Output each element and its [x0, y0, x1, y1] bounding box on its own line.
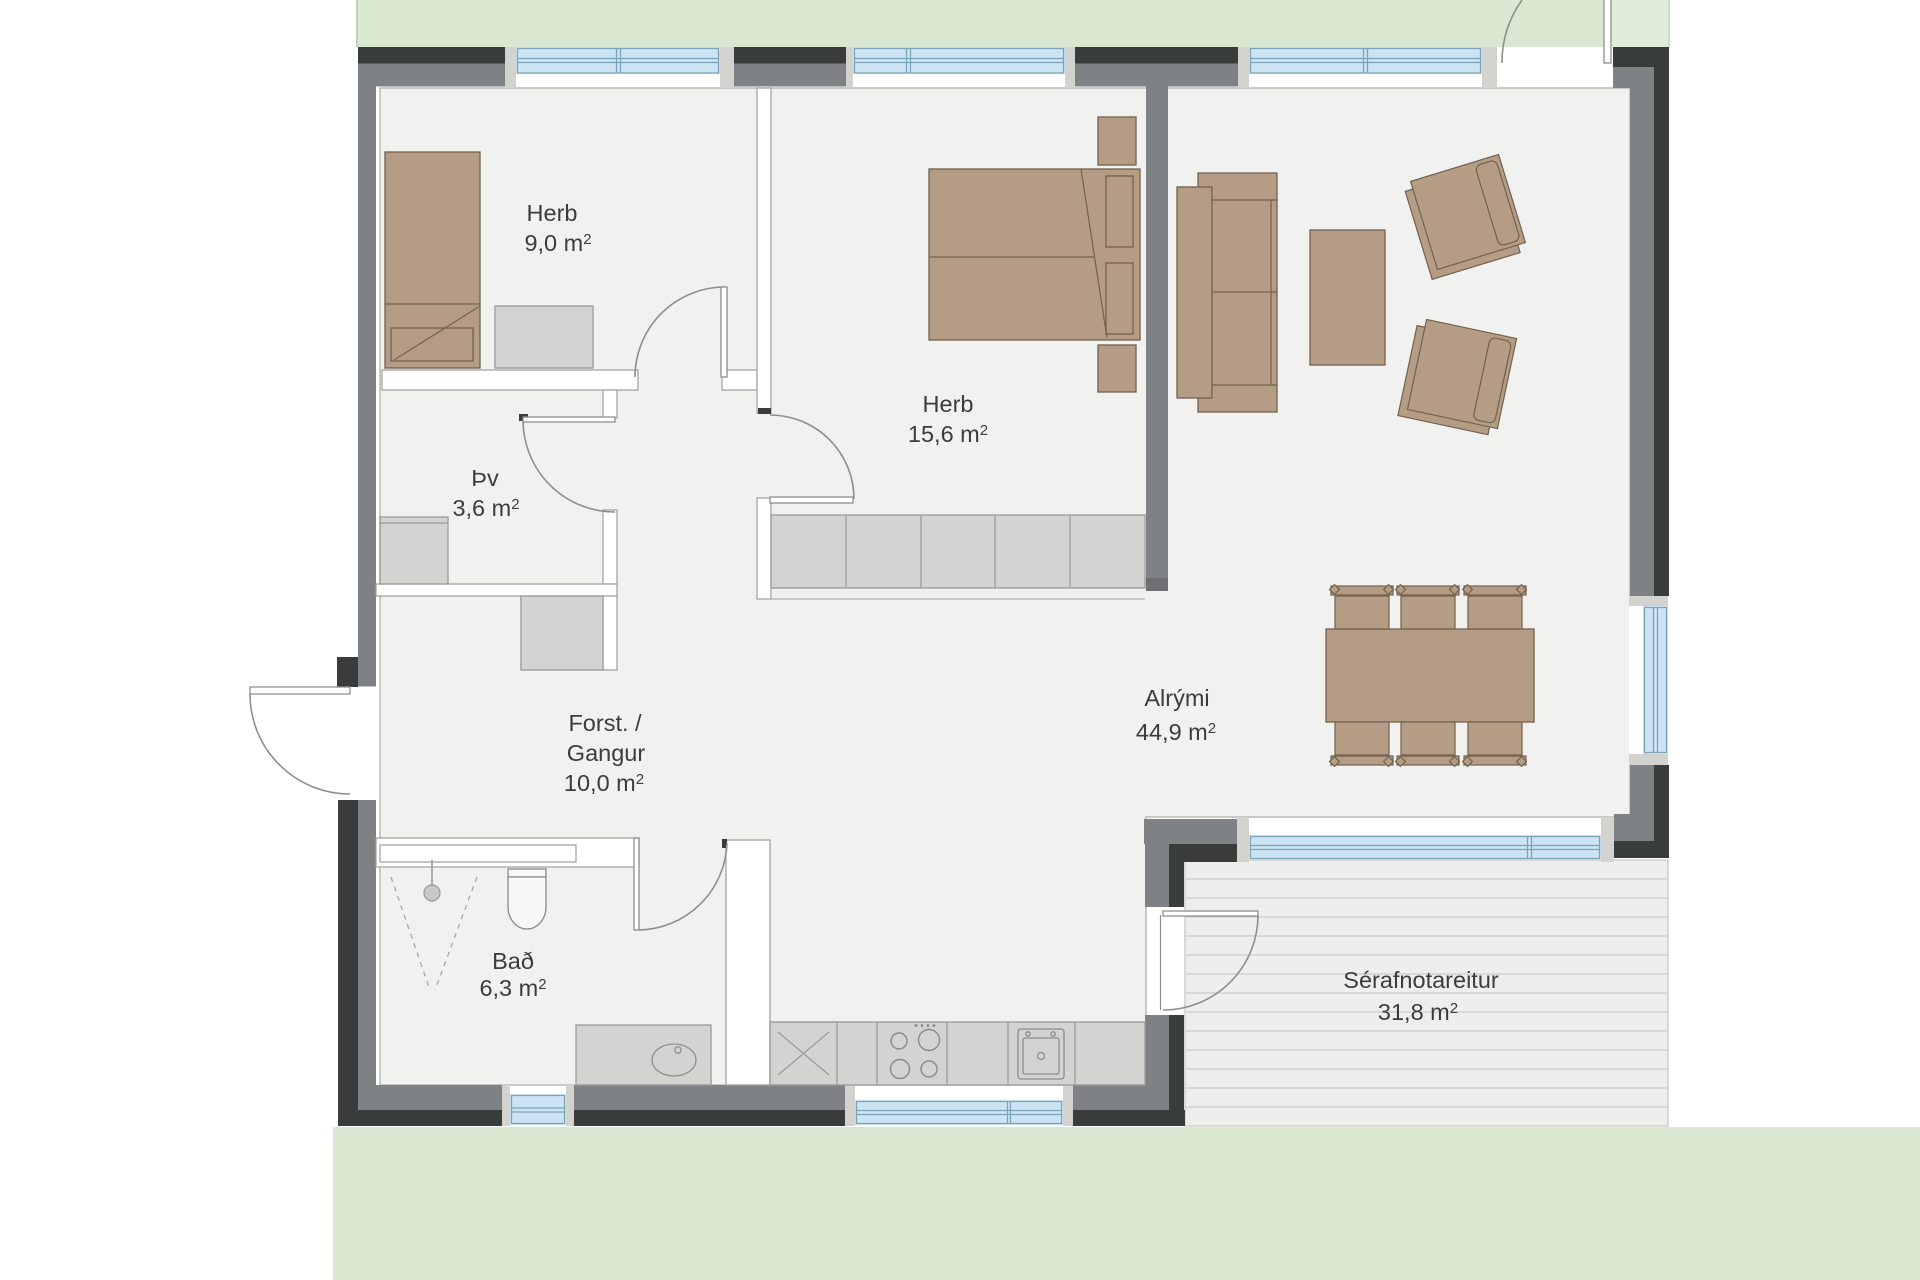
svg-text:44,9 m2: 44,9 m2: [1136, 719, 1216, 745]
svg-text:6,3 m2: 6,3 m2: [479, 975, 546, 1001]
svg-text:Alrými: Alrými: [1144, 685, 1209, 711]
svg-text:Forst. /: Forst. /: [568, 710, 642, 736]
svg-text:Sérafnotareitur: Sérafnotareitur: [1343, 967, 1499, 993]
svg-text:31,8 m2: 31,8 m2: [1378, 999, 1458, 1025]
svg-text:Herb: Herb: [923, 391, 974, 417]
svg-text:Gangur: Gangur: [567, 740, 646, 766]
svg-text:10,0 m2: 10,0 m2: [564, 770, 644, 796]
svg-text:Þv: Þv: [471, 465, 499, 491]
svg-text:Bað: Bað: [492, 948, 534, 974]
svg-text:Herb: Herb: [527, 200, 578, 226]
svg-text:15,6 m2: 15,6 m2: [908, 421, 988, 447]
svg-text:3,6 m2: 3,6 m2: [452, 495, 519, 521]
svg-text:9,0 m2: 9,0 m2: [524, 230, 591, 256]
